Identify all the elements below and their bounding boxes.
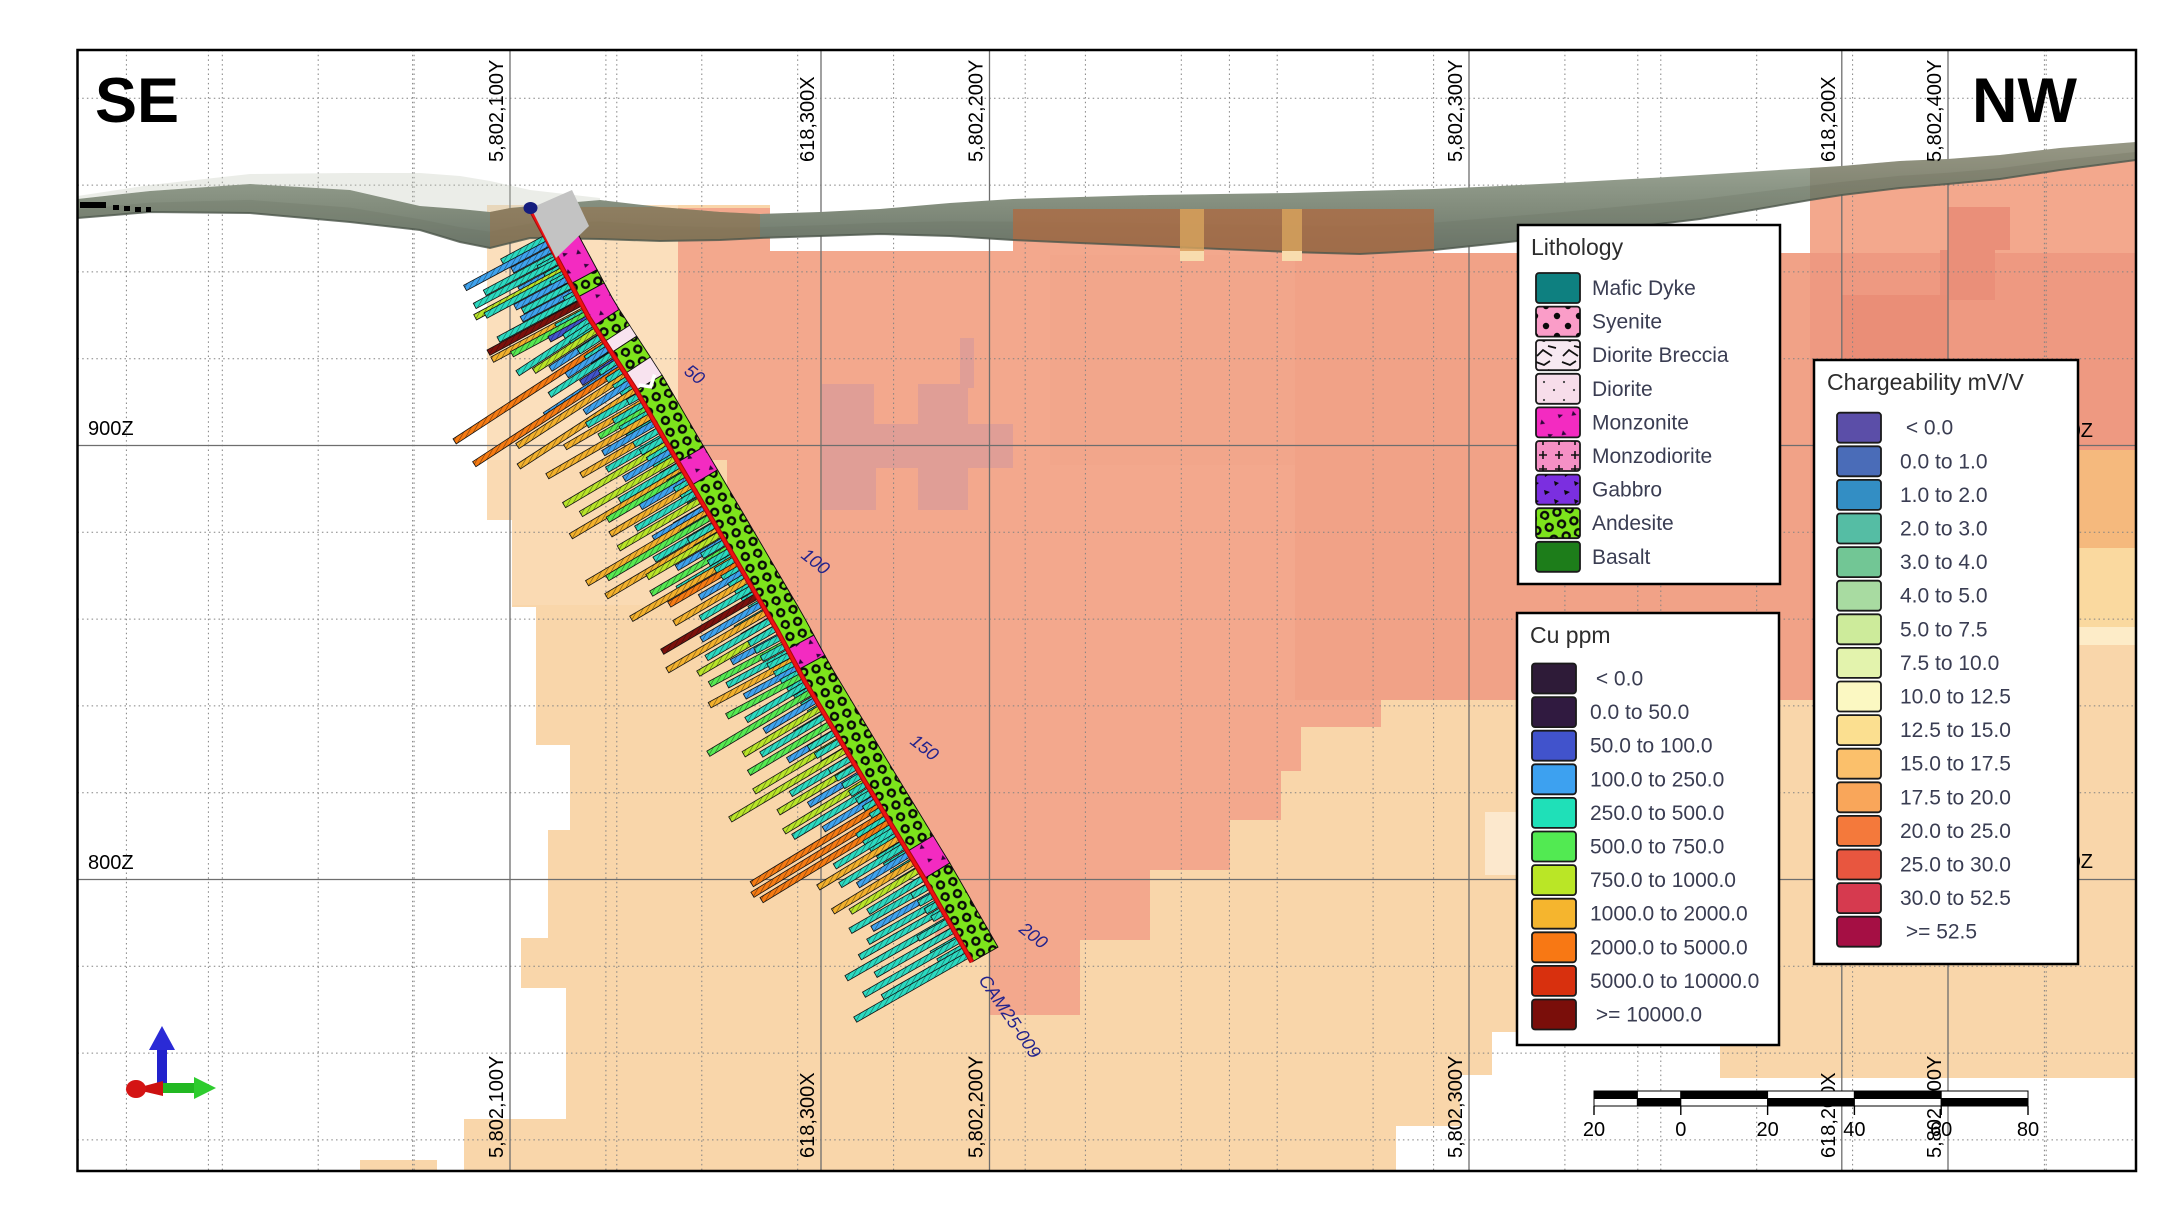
svg-text:5000.0 to 10000.0: 5000.0 to 10000.0 (1590, 970, 1759, 993)
svg-text:1.0 to 2.0: 1.0 to 2.0 (1900, 484, 1988, 507)
svg-text:900Z: 900Z (88, 418, 134, 440)
svg-text:5,802,300Y: 5,802,300Y (1445, 1056, 1467, 1158)
svg-text:Monzodiorite: Monzodiorite (1592, 445, 1712, 468)
svg-text:>= 52.5: >= 52.5 (1900, 921, 1977, 944)
svg-text:250.0 to 500.0: 250.0 to 500.0 (1590, 802, 1724, 825)
svg-text:60: 60 (1930, 1119, 1952, 1141)
svg-text:NW: NW (1972, 66, 2077, 136)
svg-text:5,802,400Y: 5,802,400Y (1924, 60, 1946, 162)
svg-text:12.5 to 15.0: 12.5 to 15.0 (1900, 719, 2011, 742)
svg-text:5,802,300Y: 5,802,300Y (1445, 60, 1467, 162)
svg-text:40: 40 (1843, 1119, 1865, 1141)
svg-text:< 0.0: < 0.0 (1590, 668, 1643, 691)
svg-text:20: 20 (1583, 1119, 1605, 1141)
svg-text:25.0 to 30.0: 25.0 to 30.0 (1900, 854, 2011, 877)
svg-text:618,300X: 618,300X (797, 76, 819, 162)
svg-text:30.0 to 52.5: 30.0 to 52.5 (1900, 887, 2011, 910)
svg-text:0.0 to 1.0: 0.0 to 1.0 (1900, 450, 1988, 473)
svg-text:80: 80 (2017, 1119, 2039, 1141)
svg-text:17.5 to 20.0: 17.5 to 20.0 (1900, 786, 2011, 809)
svg-text:5,802,100Y: 5,802,100Y (486, 60, 508, 162)
svg-text:Cu ppm: Cu ppm (1530, 622, 1611, 648)
svg-text:618,300X: 618,300X (797, 1072, 819, 1158)
svg-text:2000.0 to 5000.0: 2000.0 to 5000.0 (1590, 936, 1748, 959)
svg-text:Mafic Dyke: Mafic Dyke (1592, 277, 1696, 300)
svg-text:750.0 to 1000.0: 750.0 to 1000.0 (1590, 869, 1736, 892)
svg-text:Gabbro: Gabbro (1592, 479, 1662, 502)
svg-text:>= 10000.0: >= 10000.0 (1590, 1004, 1702, 1027)
svg-text:50.0 to 100.0: 50.0 to 100.0 (1590, 735, 1713, 758)
svg-text:618,200X: 618,200X (1818, 1072, 1840, 1158)
svg-text:0: 0 (1675, 1119, 1686, 1141)
svg-text:Andesite: Andesite (1592, 512, 1674, 535)
svg-text:Diorite Breccia: Diorite Breccia (1592, 344, 1729, 367)
svg-text:5,802,400Y: 5,802,400Y (1924, 1056, 1946, 1158)
svg-text:5.0 to 7.5: 5.0 to 7.5 (1900, 618, 1988, 641)
svg-text:Lithology: Lithology (1531, 234, 1624, 260)
svg-text:20: 20 (1756, 1119, 1778, 1141)
svg-text:4.0 to 5.0: 4.0 to 5.0 (1900, 585, 1988, 608)
svg-text:5,802,200Y: 5,802,200Y (966, 60, 988, 162)
svg-text:7.5 to 10.0: 7.5 to 10.0 (1900, 652, 1999, 675)
svg-text:Basalt: Basalt (1592, 546, 1651, 569)
svg-text:5,802,200Y: 5,802,200Y (966, 1056, 988, 1158)
svg-text:5,802,100Y: 5,802,100Y (486, 1056, 508, 1158)
svg-text:20.0 to 25.0: 20.0 to 25.0 (1900, 820, 2011, 843)
svg-text:0.0 to 50.0: 0.0 to 50.0 (1590, 701, 1689, 724)
svg-text:2.0 to 3.0: 2.0 to 3.0 (1900, 518, 1988, 541)
svg-text:< 0.0: < 0.0 (1900, 417, 1953, 440)
svg-text:100.0 to 250.0: 100.0 to 250.0 (1590, 768, 1724, 791)
svg-text:Monzonite: Monzonite (1592, 411, 1689, 434)
svg-text:1000.0 to 2000.0: 1000.0 to 2000.0 (1590, 903, 1748, 926)
svg-text:Diorite: Diorite (1592, 378, 1653, 401)
svg-text:Chargeability mV/V: Chargeability mV/V (1827, 369, 2025, 395)
svg-text:618,200X: 618,200X (1818, 76, 1840, 162)
svg-text:10.0 to 12.5: 10.0 to 12.5 (1900, 686, 2011, 709)
svg-text:800Z: 800Z (88, 852, 134, 874)
svg-text:15.0 to 17.5: 15.0 to 17.5 (1900, 753, 2011, 776)
svg-text:Syenite: Syenite (1592, 311, 1662, 334)
svg-text:500.0 to 750.0: 500.0 to 750.0 (1590, 836, 1724, 859)
svg-text:3.0 to 4.0: 3.0 to 4.0 (1900, 551, 1988, 574)
svg-text:SE: SE (95, 66, 179, 136)
